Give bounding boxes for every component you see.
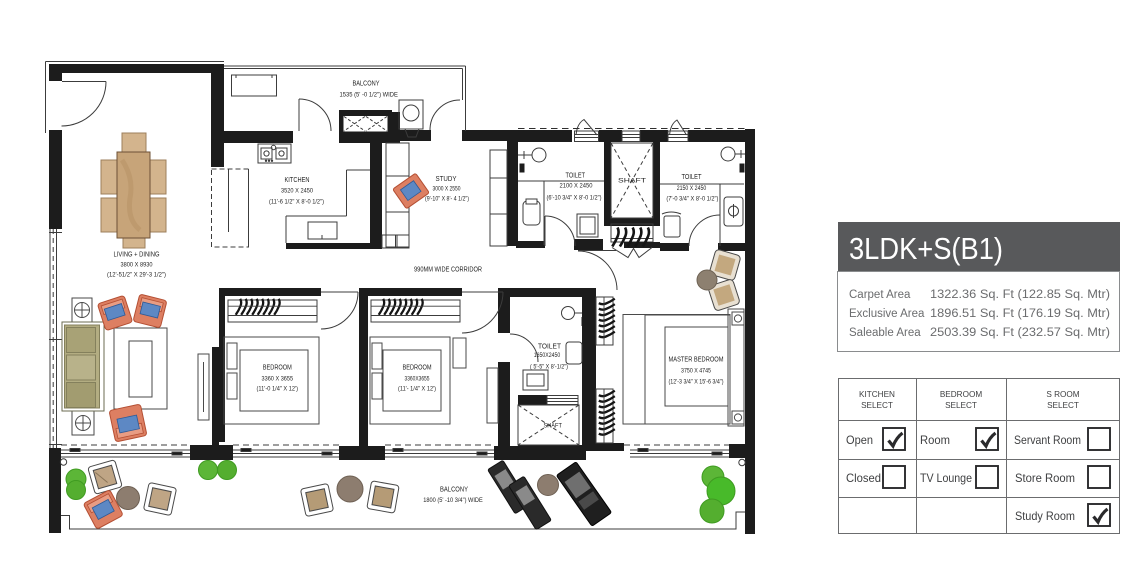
- svg-text:( 5'-5" X 8'-1/2"): ( 5'-5" X 8'-1/2"): [530, 364, 568, 371]
- svg-text:MASTER BEDROOM: MASTER BEDROOM: [669, 357, 724, 364]
- svg-text:S ROOM: S ROOM: [1046, 390, 1079, 399]
- svg-text:Saleable Area: Saleable Area: [849, 327, 921, 339]
- svg-text:(6'-10 3/4" X 8'-0 1/2"): (6'-10 3/4" X 8'-0 1/2"): [547, 195, 602, 202]
- svg-text:SELECT: SELECT: [1047, 401, 1079, 410]
- svg-text:BALCONY: BALCONY: [353, 81, 380, 88]
- svg-text:3800 X 8930: 3800 X 8930: [121, 262, 153, 269]
- svg-text:(12'-3 3/4" X 15'-6 3/4"): (12'-3 3/4" X 15'-6 3/4"): [669, 379, 724, 386]
- svg-text:Store Room: Store Room: [1015, 471, 1075, 485]
- svg-text:BALCONY: BALCONY: [440, 487, 468, 494]
- svg-text:1896.51 Sq. Ft (176.19 Sq. Mtr: 1896.51 Sq. Ft (176.19 Sq. Mtr): [930, 308, 1110, 320]
- svg-text:SHAFT: SHAFT: [543, 423, 562, 430]
- svg-text:STUDY: STUDY: [436, 176, 457, 183]
- svg-text:1800 (5' -10 3/4") WIDE: 1800 (5' -10 3/4") WIDE: [423, 497, 483, 504]
- svg-text:(7'-0 3/4" X 8'-0 1/2"): (7'-0 3/4" X 8'-0 1/2"): [666, 196, 718, 203]
- svg-text:(11'- 1/4" X 12'): (11'- 1/4" X 12'): [398, 386, 436, 393]
- svg-text:Exclusive Area: Exclusive Area: [849, 308, 925, 320]
- svg-text:1322.36 Sq. Ft (122.85 Sq. Mtr: 1322.36 Sq. Ft (122.85 Sq. Mtr): [930, 289, 1110, 301]
- svg-text:TOILET: TOILET: [682, 174, 703, 181]
- svg-text:3360 X 3655: 3360 X 3655: [262, 375, 294, 382]
- svg-text:2150 X 2450: 2150 X 2450: [677, 185, 707, 192]
- svg-text:TOILET: TOILET: [538, 344, 562, 351]
- svg-text:990MM WIDE CORRIDOR: 990MM WIDE CORRIDOR: [414, 267, 482, 274]
- svg-text:SELECT: SELECT: [861, 401, 893, 410]
- svg-text:TV Lounge: TV Lounge: [920, 471, 972, 485]
- svg-text:1535 (5' -0 1/2") WIDE: 1535 (5' -0 1/2") WIDE: [339, 92, 398, 99]
- svg-text:BEDROOM: BEDROOM: [263, 364, 292, 371]
- svg-text:3LDK+S(B1): 3LDK+S(B1): [849, 232, 1003, 266]
- svg-text:SHAFT: SHAFT: [618, 178, 646, 185]
- svg-text:(11'-0 1/4" X 12'): (11'-0 1/4" X 12'): [257, 386, 299, 393]
- svg-text:2503.39 Sq. Ft (232.57 Sq. Mtr: 2503.39 Sq. Ft (232.57 Sq. Mtr): [930, 327, 1110, 339]
- svg-text:3520 X 2450: 3520 X 2450: [281, 188, 313, 195]
- svg-text:Carpet Area: Carpet Area: [849, 289, 911, 301]
- svg-text:TOILET: TOILET: [566, 173, 586, 180]
- svg-text:SELECT: SELECT: [945, 401, 977, 410]
- svg-text:Open: Open: [846, 433, 873, 447]
- svg-text:3360X3655: 3360X3655: [405, 375, 430, 382]
- svg-text:KITCHEN: KITCHEN: [859, 390, 895, 399]
- svg-text:(11'-6 1/2" X 8'-0 1/2"): (11'-6 1/2" X 8'-0 1/2"): [269, 199, 324, 206]
- svg-text:3000 X 2550: 3000 X 2550: [433, 186, 461, 193]
- svg-text:Servant Room: Servant Room: [1014, 433, 1081, 447]
- svg-text:2100 X 2450: 2100 X 2450: [560, 183, 593, 190]
- svg-text:(12'-51/2" X 29'-3 1/2"): (12'-51/2" X 29'-3 1/2"): [107, 272, 166, 279]
- svg-text:LIVING + DINING: LIVING + DINING: [114, 252, 160, 259]
- svg-text:Closed: Closed: [846, 471, 881, 485]
- svg-text:3750 X 4745: 3750 X 4745: [681, 368, 711, 375]
- svg-text:Study Room: Study Room: [1015, 509, 1075, 523]
- svg-text:Room: Room: [920, 433, 950, 447]
- svg-text:BEDROOM: BEDROOM: [403, 364, 432, 371]
- svg-text:KITCHEN: KITCHEN: [285, 177, 310, 184]
- svg-text:(9'-10" X 8'- 4 1/2"): (9'-10" X 8'- 4 1/2"): [425, 196, 469, 203]
- svg-text:BEDROOM: BEDROOM: [940, 390, 982, 399]
- svg-text:1650X2450: 1650X2450: [534, 352, 561, 359]
